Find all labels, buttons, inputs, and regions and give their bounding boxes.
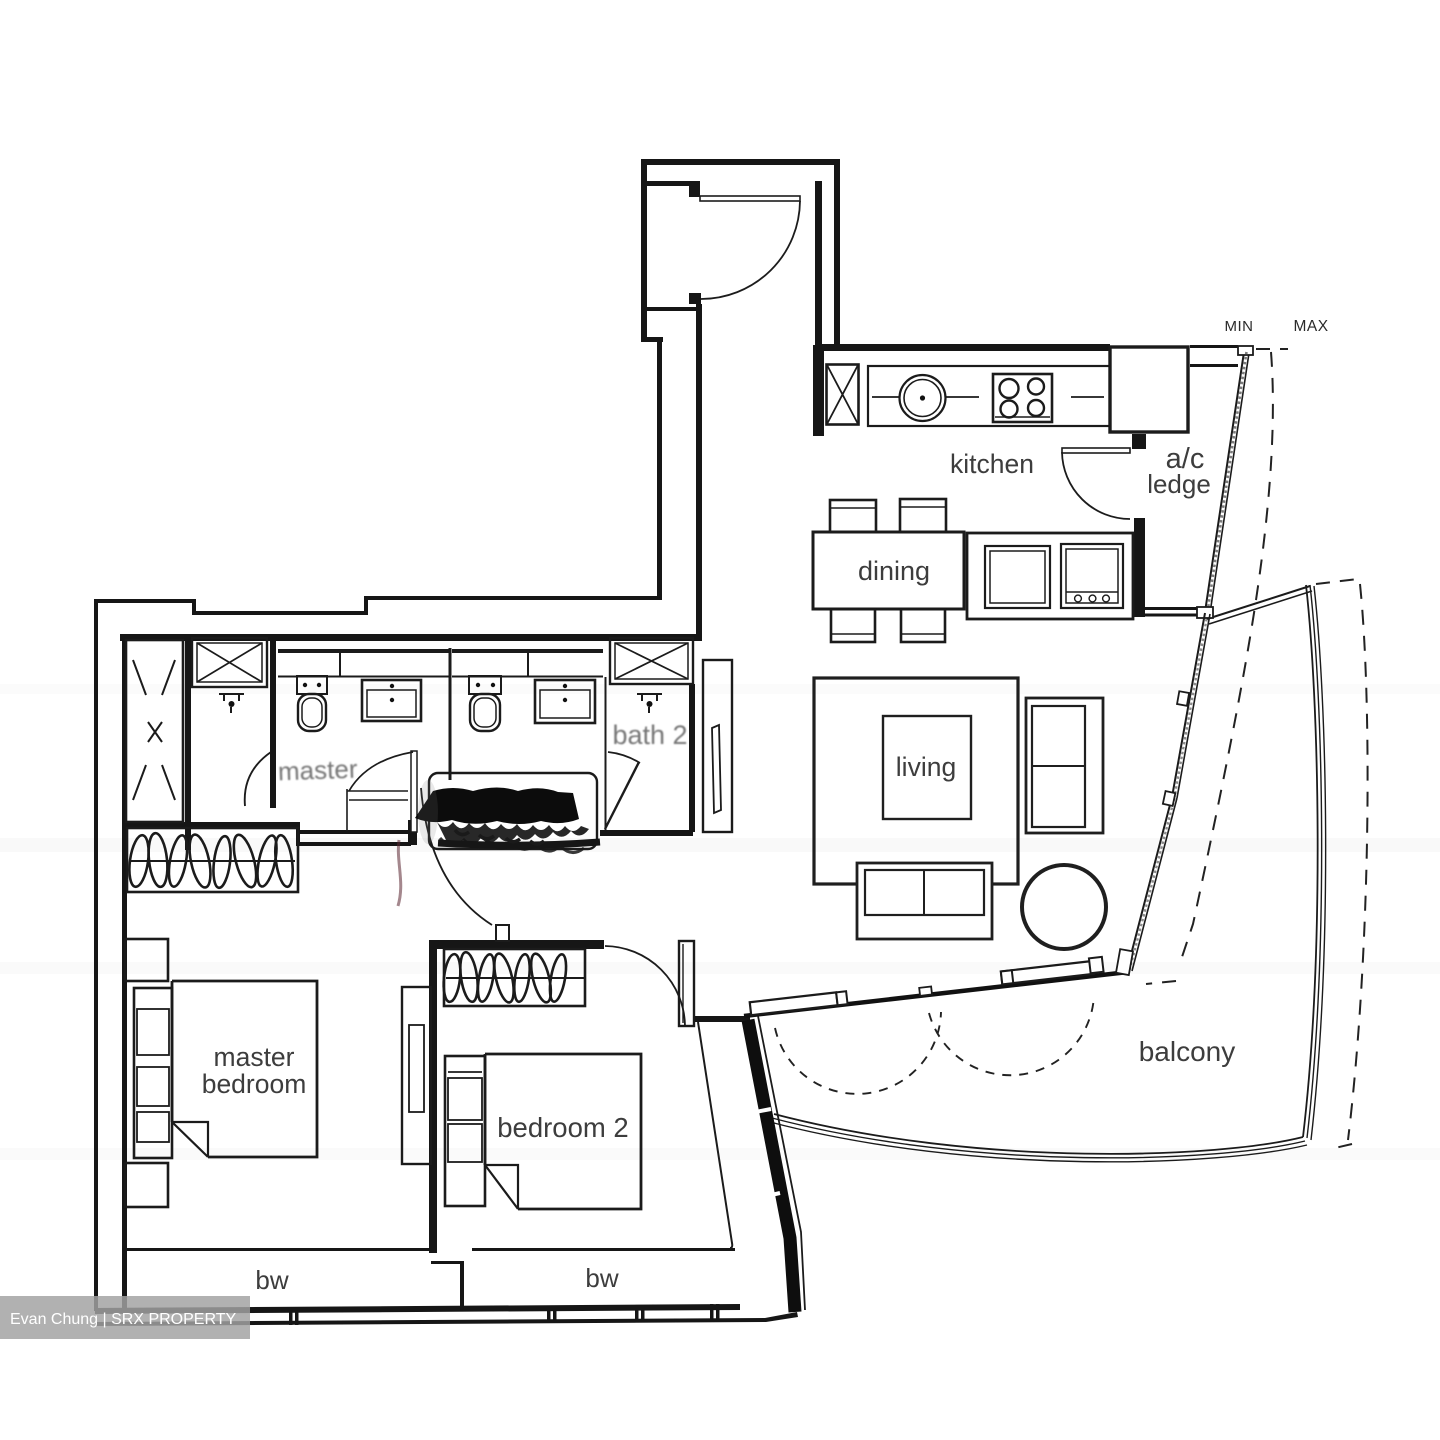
svg-text:dining: dining: [858, 556, 930, 586]
svg-text:living: living: [896, 752, 956, 782]
svg-text:ledge: ledge: [1147, 469, 1211, 499]
svg-text:bedroom: bedroom: [202, 1069, 307, 1099]
svg-text:Evan Chung | SRX PROPERTY: Evan Chung | SRX PROPERTY: [10, 1311, 237, 1328]
svg-text:bath 2: bath 2: [612, 720, 687, 750]
svg-text:master: master: [214, 1042, 295, 1072]
svg-text:MAX: MAX: [1293, 318, 1328, 335]
svg-text:MIN: MIN: [1225, 318, 1254, 335]
svg-text:master: master: [277, 754, 358, 787]
svg-text:bedroom 2: bedroom 2: [497, 1112, 628, 1143]
svg-text:bw: bw: [255, 1265, 288, 1295]
svg-text:kitchen: kitchen: [950, 449, 1034, 479]
svg-text:balcony: balcony: [1139, 1036, 1236, 1067]
svg-text:bw: bw: [585, 1263, 618, 1293]
